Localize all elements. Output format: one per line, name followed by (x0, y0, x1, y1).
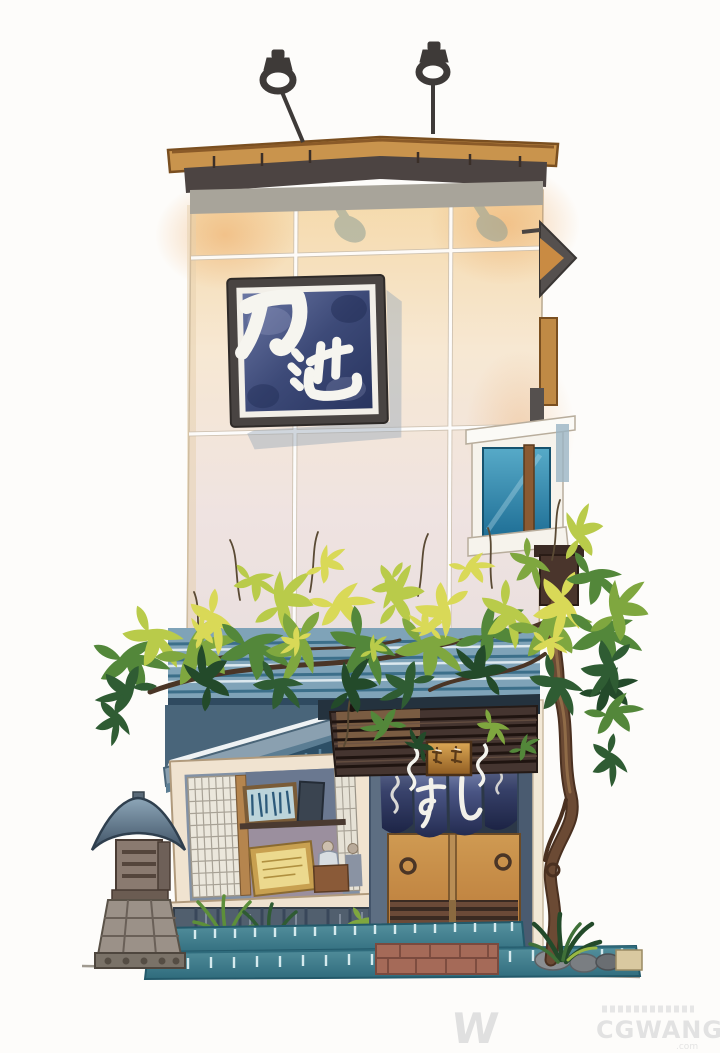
watercolor-painting: 乃池 (0, 0, 720, 1053)
menu-board (245, 784, 298, 824)
brick-pavement (376, 944, 498, 974)
roof (168, 137, 558, 214)
shop-window (162, 752, 382, 922)
watermark: W CGWANG .com (449, 1004, 720, 1053)
framed-certificate (249, 841, 316, 896)
watermark-suffix: .com (676, 1042, 698, 1052)
lit-sign (427, 742, 471, 775)
roof-lamp-left (263, 50, 303, 142)
shoji-lattice (188, 775, 251, 897)
main-sign: 乃池 (227, 274, 405, 449)
stone-lantern (92, 792, 185, 968)
watermark-logo: W (449, 1004, 500, 1053)
roof-lamp-right (419, 42, 448, 134)
watermark-brand: CGWANG (596, 1016, 720, 1044)
